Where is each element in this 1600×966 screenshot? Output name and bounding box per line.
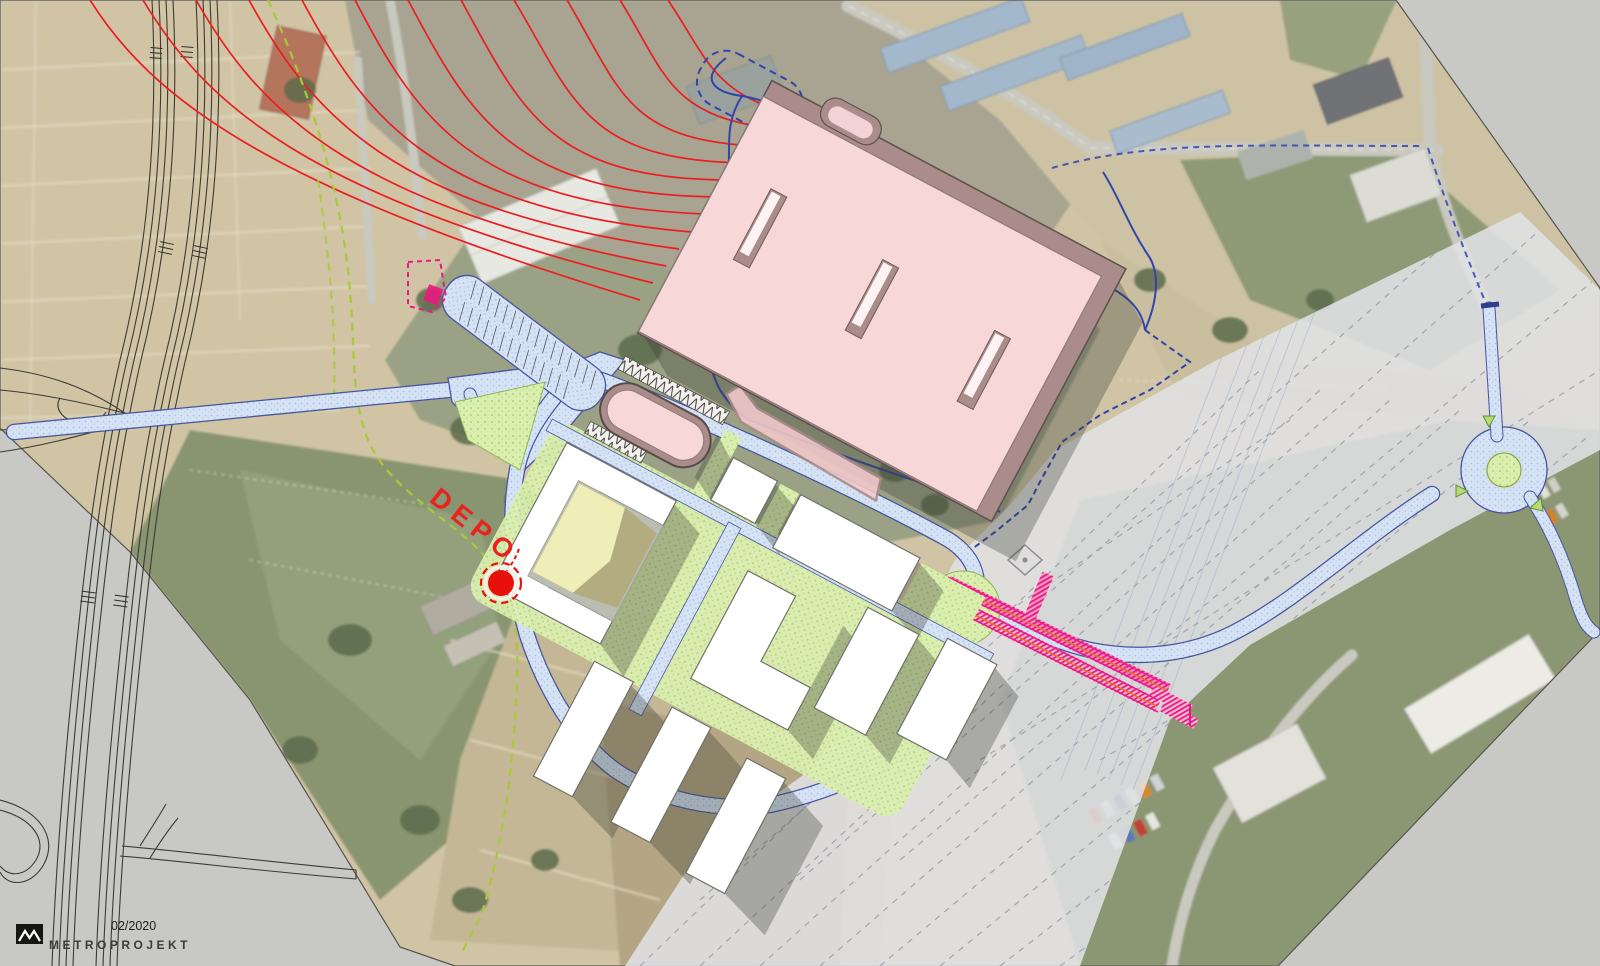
metroprojekt-logo-icon: [16, 924, 43, 944]
map-canvas: DEPO 02/2020 METROPROJEKT: [0, 0, 1600, 966]
company-label: METROPROJEKT: [49, 938, 191, 952]
site-plan-svg: [0, 0, 1600, 966]
date-label: 02/2020: [111, 919, 156, 933]
